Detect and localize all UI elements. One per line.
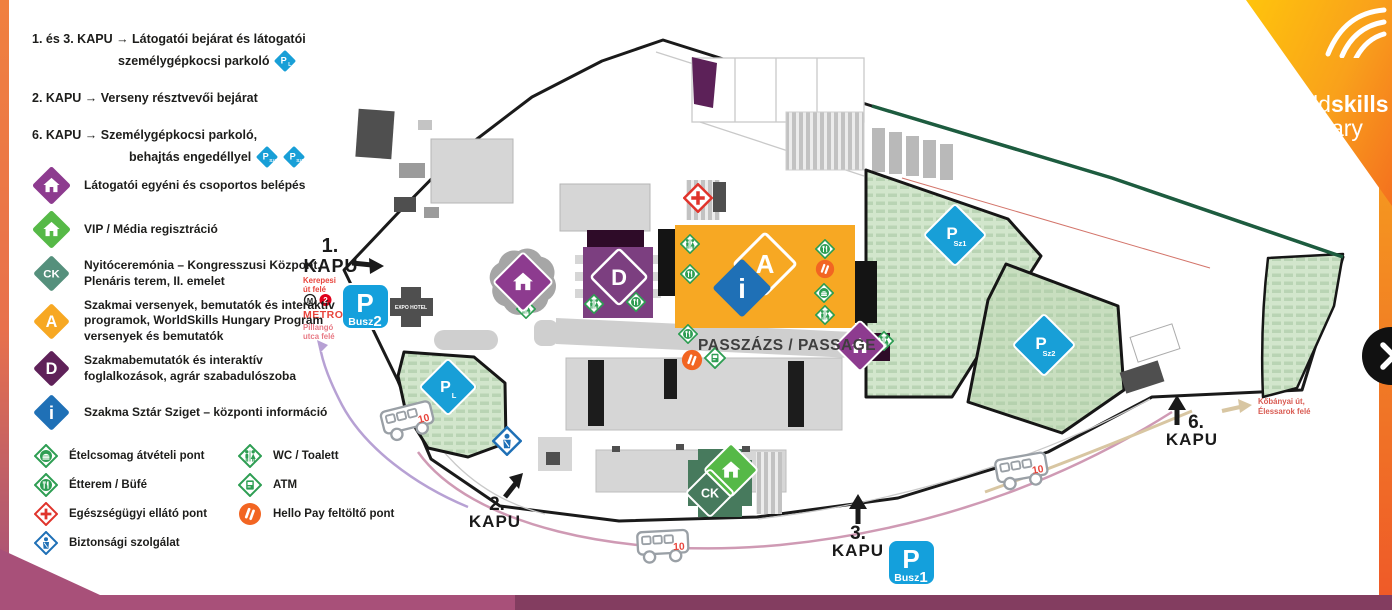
svg-text:CK: CK xyxy=(701,487,719,501)
note-gate-6: 6. KAPU → Személygépkocsi parkoló, xyxy=(32,124,342,146)
svg-text:i: i xyxy=(738,273,746,304)
venue-legend: Látogatói egyéni és csoportos belépés VI… xyxy=(32,166,344,437)
svg-text:KAPU: KAPU xyxy=(469,512,521,531)
building-top-purple xyxy=(692,57,717,108)
note-gate-6-cont: behajtás engedéllyel xyxy=(129,146,251,168)
svg-text:P: P xyxy=(356,288,373,318)
food-package-icon xyxy=(34,444,58,468)
note-gates-1-3: 1. és 3. KAPU → Látogatói bejárat és lát… xyxy=(32,28,342,50)
legend-item-vip: VIP / Média regisztráció xyxy=(32,210,344,249)
legend-item-a: A Szakmai versenyek, bemutatók és intera… xyxy=(32,298,344,344)
svg-text:A: A xyxy=(46,313,58,331)
worldskills-hand-icon xyxy=(1320,4,1388,58)
pavilion-a-icon: A xyxy=(32,302,71,341)
svg-text:L: L xyxy=(289,62,292,68)
svg-text:Élessarok felé: Élessarok felé xyxy=(1258,407,1311,416)
svg-text:CK: CK xyxy=(43,269,60,281)
next-button[interactable] xyxy=(1362,327,1392,385)
service-col-2: WC / Toalett ATM Hello Pay feltöltő pont xyxy=(238,444,394,560)
logo-country: Hungary xyxy=(1276,116,1389,140)
legend-item-restaurant: Étterem / Büfé xyxy=(34,473,238,497)
busz1-parking: P Busz1 xyxy=(888,540,935,586)
legend-item-ck: CK Nyitóceremónia – Kongresszusi Központ… xyxy=(32,254,344,293)
wc-icon xyxy=(238,444,262,468)
svg-text:Busz2: Busz2 xyxy=(348,313,381,330)
worldskills-logo: worldskills Hungary xyxy=(1276,92,1389,141)
legend-item-hellopay: Hello Pay feltöltő pont xyxy=(238,502,394,526)
svg-text:P: P xyxy=(290,151,296,161)
legend-item-wc: WC / Toalett xyxy=(238,444,394,468)
svg-text:i: i xyxy=(49,402,54,423)
hellopay-icon xyxy=(238,502,262,526)
security-icon xyxy=(34,531,58,555)
svg-text:KAPU: KAPU xyxy=(832,541,884,560)
chevron-right-icon xyxy=(1363,328,1392,384)
atm-icon xyxy=(238,473,262,497)
legend-item-security: Biztonsági szolgálat xyxy=(34,531,238,555)
logo-word-bold: skills xyxy=(1331,91,1389,117)
hellopay-icon xyxy=(816,260,834,278)
vip-registration-icon xyxy=(32,210,71,249)
busz2-parking: P Busz2 xyxy=(342,284,389,330)
svg-text:P: P xyxy=(263,151,269,161)
note-gate-2: 2. KAPU → Verseny résztvevői bejárat xyxy=(32,87,342,109)
pavilion-d-annex xyxy=(587,230,644,249)
parking-hatch-top xyxy=(786,112,864,170)
parking-sz2-icon: P Sz2 xyxy=(283,146,305,168)
svg-text:Sz1: Sz1 xyxy=(954,239,967,248)
svg-text:Busz1: Busz1 xyxy=(894,569,927,586)
ck-icon: CK xyxy=(32,254,71,293)
parking-zone-far-right xyxy=(1262,254,1343,397)
svg-text:D: D xyxy=(611,265,627,290)
gate-notes: 1. és 3. KAPU → Látogatói bejárat és lát… xyxy=(32,28,342,168)
parking-l-icon: P L xyxy=(274,50,296,72)
passage-label: PASSZÁZS / PASSAGE xyxy=(698,337,876,354)
info-icon: i xyxy=(32,393,71,432)
legend-item-food-package: Ételcsomag átvételi pont xyxy=(34,444,238,468)
svg-text:P: P xyxy=(281,55,287,65)
worldskills-venue-map-page: 10 xyxy=(0,0,1392,610)
svg-text:Sz2: Sz2 xyxy=(297,158,305,163)
kobanyai-label: Kőbányai út, Élessarok felé xyxy=(1258,397,1311,416)
svg-text:P: P xyxy=(440,379,451,396)
legend-item-info: i Szakma Sztár Sziget – központi informá… xyxy=(32,393,344,432)
parking-sz1-icon: P Sz1 xyxy=(256,146,278,168)
service-legend: Ételcsomag átvételi pont Étterem / Büfé … xyxy=(34,444,394,560)
svg-text:D: D xyxy=(46,360,58,378)
svg-text:Sz1: Sz1 xyxy=(270,158,278,163)
legend-item-d: D Szakmabemutatók és interaktív foglalko… xyxy=(32,349,344,388)
legend-item-visitor-entrance: Látogatói egyéni és csoportos belépés xyxy=(32,166,344,205)
expo-hotel-label: EXPO HOTEL xyxy=(395,305,427,311)
pavilion-d-icon: D xyxy=(32,349,71,388)
legend-item-medical: Egészségügyi ellátó pont xyxy=(34,502,238,526)
svg-text:P: P xyxy=(902,544,919,574)
visitor-entrance-icon xyxy=(32,166,71,205)
logo-word-light: world xyxy=(1276,91,1331,117)
service-col-1: Ételcsomag átvételi pont Étterem / Büfé … xyxy=(34,444,238,560)
restaurant-icon xyxy=(34,473,58,497)
svg-text:L: L xyxy=(452,391,457,400)
bus-icon xyxy=(637,530,689,563)
svg-text:Kőbányai út,: Kőbányai út, xyxy=(1258,397,1305,406)
gate-6: 6. KAPU xyxy=(1166,395,1218,449)
svg-text:A: A xyxy=(756,249,775,279)
medical-icon xyxy=(34,502,58,526)
svg-text:Sz2: Sz2 xyxy=(1043,349,1056,358)
legend-item-atm: ATM xyxy=(238,473,394,497)
svg-text:KAPU: KAPU xyxy=(1166,430,1218,449)
note-gates-1-3-cont: személygépkocsi parkoló xyxy=(118,50,269,72)
